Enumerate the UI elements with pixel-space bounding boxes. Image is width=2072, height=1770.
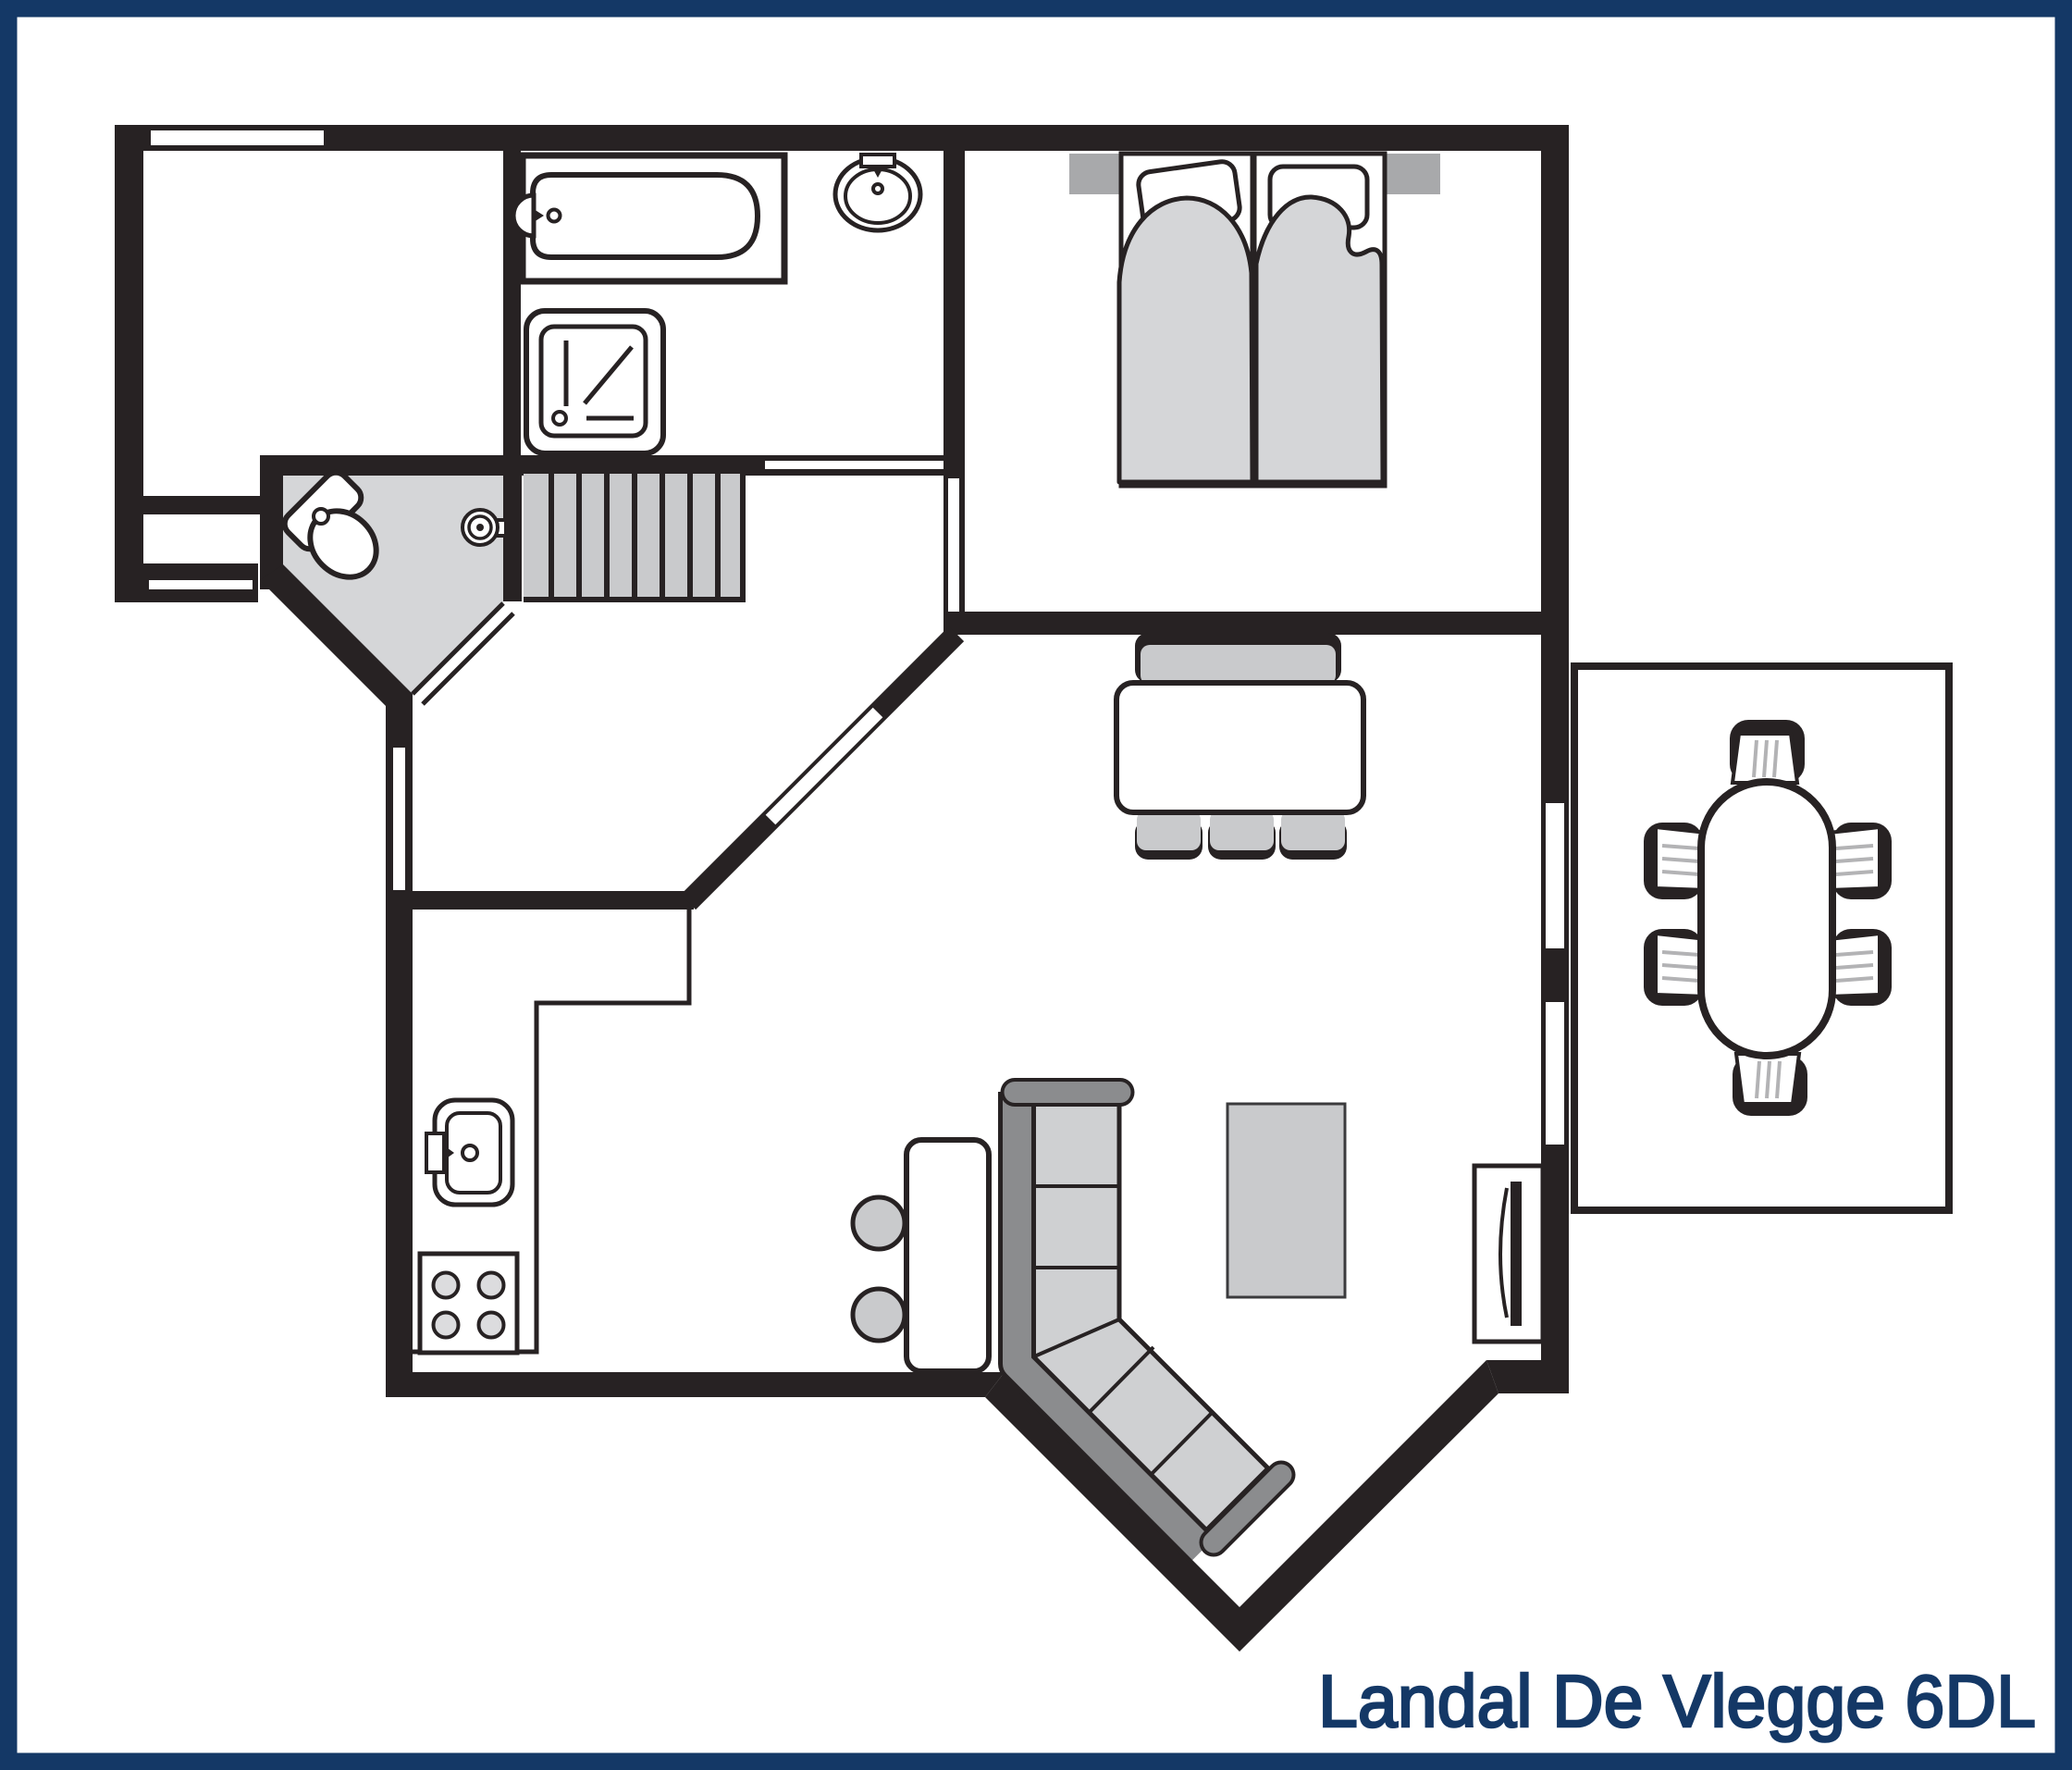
svg-text:Landal De Vlegge 6DL: Landal De Vlegge 6DL [1318,1660,2036,1742]
